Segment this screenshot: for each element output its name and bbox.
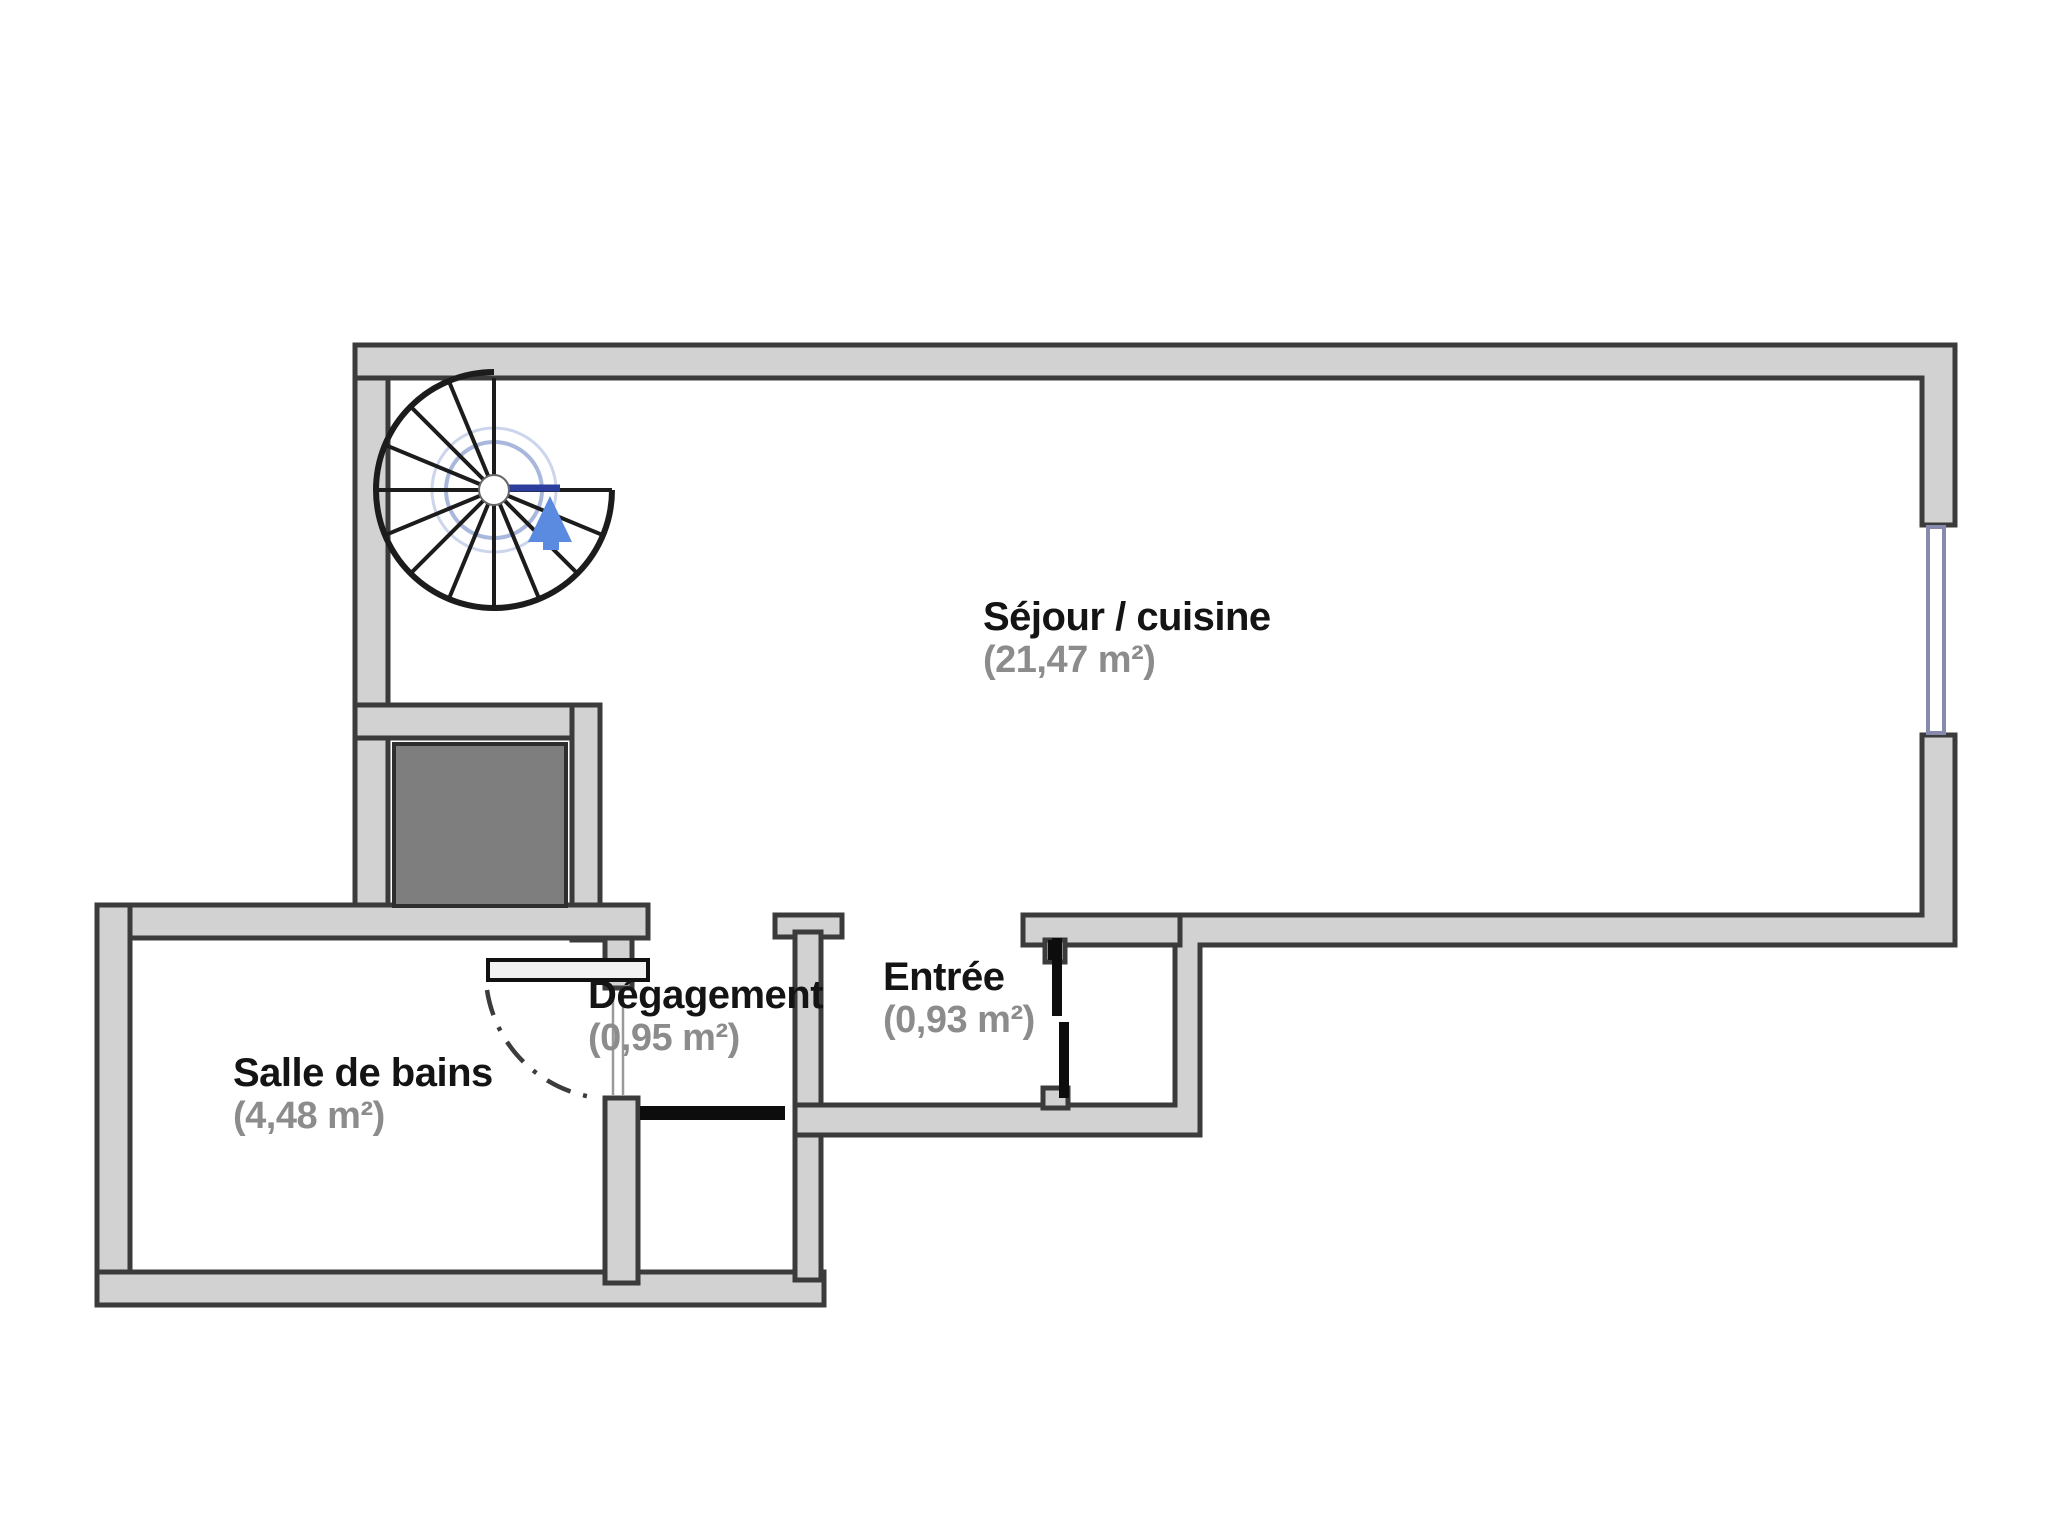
technical-shaft	[394, 744, 566, 906]
wall-bathroom-top	[97, 905, 648, 938]
room-area: (0,93 m²)	[883, 999, 1035, 1042]
storage-door-leaf	[640, 1106, 785, 1120]
room-name: Salle de bains	[233, 1051, 493, 1095]
room-label-entree: Entrée (0,93 m²)	[883, 956, 1035, 1042]
room-label-degagement: Dégagement (0,95 m²)	[588, 974, 823, 1060]
room-name: Entrée	[883, 955, 1005, 999]
room-name: Dégagement	[588, 973, 823, 1017]
spiral-staircase	[376, 372, 612, 608]
floor-plan-canvas: Séjour / cuisine (21,47 m²) Dégagement (…	[0, 0, 2048, 1536]
wall-shaft-top	[355, 705, 600, 738]
room-area: (4,48 m²)	[233, 1095, 493, 1138]
wall-bathroom-bottom	[97, 1272, 824, 1305]
wall-right-lower-and-sejour-bottom	[795, 735, 1955, 1135]
room-label-sejour-cuisine: Séjour / cuisine (21,47 m²)	[983, 596, 1271, 682]
room-name: Séjour / cuisine	[983, 595, 1271, 639]
stair-newel-post	[479, 475, 509, 505]
room-area: (0,95 m²)	[588, 1017, 823, 1060]
wall-alcove-right	[795, 1135, 821, 1280]
bathroom-door-swing-arc	[487, 990, 598, 1098]
room-label-salle-de-bains: Salle de bains (4,48 m²)	[233, 1052, 493, 1138]
window	[1928, 527, 1944, 733]
floor-plan-drawing	[0, 0, 2048, 1536]
room-area: (21,47 m²)	[983, 639, 1271, 682]
wall-top-and-right-upper	[355, 345, 1955, 525]
wall-bathroom-right	[605, 1098, 638, 1283]
stair-direction-arrow-icon	[528, 496, 572, 550]
wall-bathroom-left	[97, 905, 130, 1305]
